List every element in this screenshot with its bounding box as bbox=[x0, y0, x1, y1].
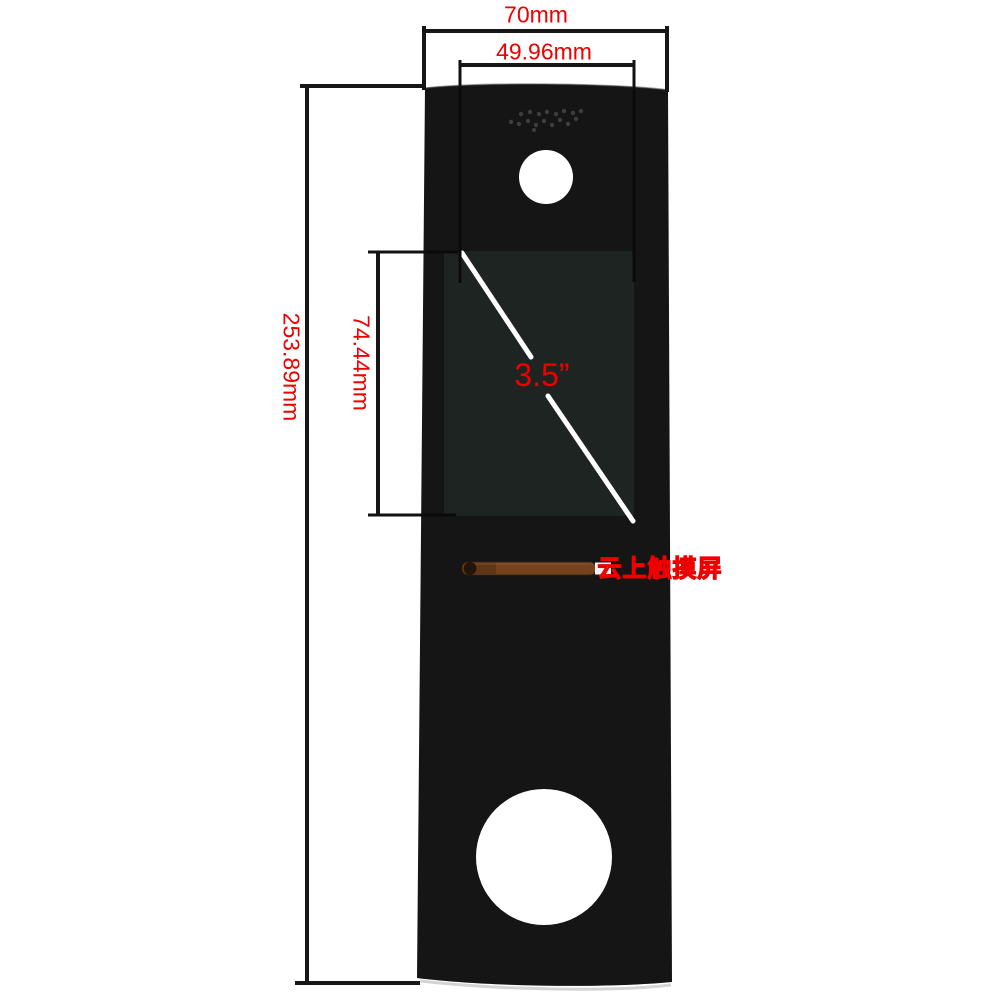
panel-height-label: 253.89mm bbox=[280, 313, 303, 422]
outer-width-label: 70mm bbox=[504, 4, 568, 27]
camera-hole bbox=[519, 150, 573, 204]
screen-height-label: 74.44mm bbox=[350, 315, 373, 411]
speaker-hole bbox=[476, 789, 612, 925]
dimension-total-height bbox=[295, 85, 426, 983]
screen-width-label: 49.96mm bbox=[496, 41, 592, 64]
product-dimension-photo: 70mm 49.96mm 253.89mm 74.44mm 3.5” 云上触摸屏 bbox=[0, 0, 1000, 1000]
watermark-text: 云上触摸屏 bbox=[598, 549, 723, 584]
screen-diagonal-label: 3.5” bbox=[514, 359, 569, 391]
panel-drawing bbox=[0, 0, 1000, 1000]
flex-cable bbox=[462, 562, 611, 575]
